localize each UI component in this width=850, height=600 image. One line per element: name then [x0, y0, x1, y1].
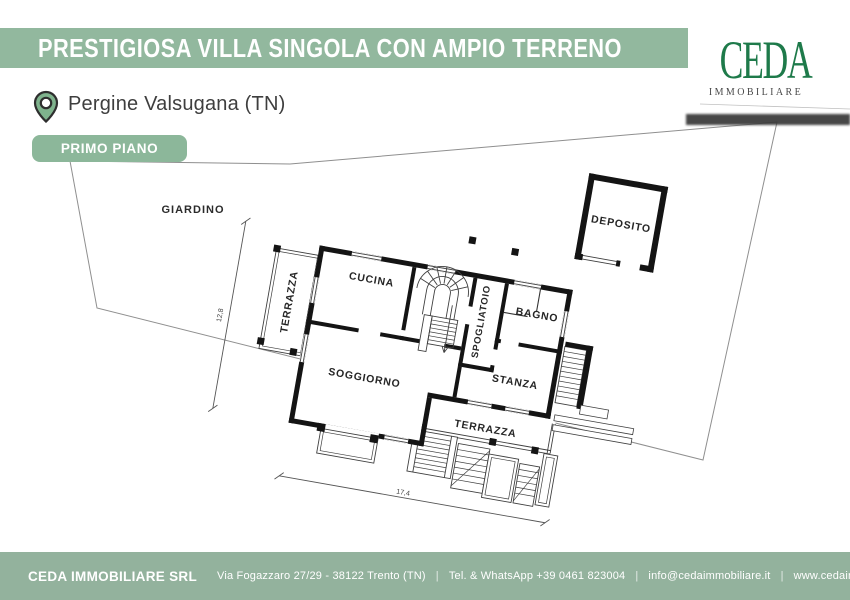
footer-separator: |: [781, 570, 784, 582]
room-label-giardino: GIARDINO: [162, 204, 225, 216]
footer-separator: |: [436, 570, 439, 582]
floor-badge-label: PRIMO PIANO: [61, 141, 158, 156]
floor-plan: GIARDINO 12,8 17,4: [0, 0, 850, 600]
footer-bar: CEDA IMMOBILIARE SRL Via Fogazzaro 27/29…: [0, 552, 850, 600]
footer-separator: |: [635, 570, 638, 582]
building-group: 12,8 17,4 DEPOSITO: [191, 114, 676, 539]
footer-website: www.cedaimmobiliare.it: [794, 570, 850, 582]
pillar: [511, 248, 519, 256]
footer-info: Via Fogazzaro 27/29 - 38122 Trento (TN) …: [217, 570, 850, 582]
floor-badge: PRIMO PIANO: [32, 135, 187, 162]
flyer-page: { "header": { "title": "PRESTIGIOSA VILL…: [0, 0, 850, 600]
deposito-building: DEPOSITO: [574, 173, 668, 273]
footer-address: Via Fogazzaro 27/29 - 38122 Trento (TN): [217, 570, 426, 582]
footer-company: CEDA IMMOBILIARE SRL: [28, 569, 197, 584]
neighbor-building-bar: [686, 114, 850, 125]
pillar: [468, 236, 476, 244]
footer-email: info@cedaimmobiliare.it: [648, 570, 770, 582]
footer-phone: Tel. & WhatsApp +39 0461 823004: [449, 570, 626, 582]
dimension-depth-label: 12,8: [216, 308, 225, 323]
east-stair: [550, 342, 646, 445]
